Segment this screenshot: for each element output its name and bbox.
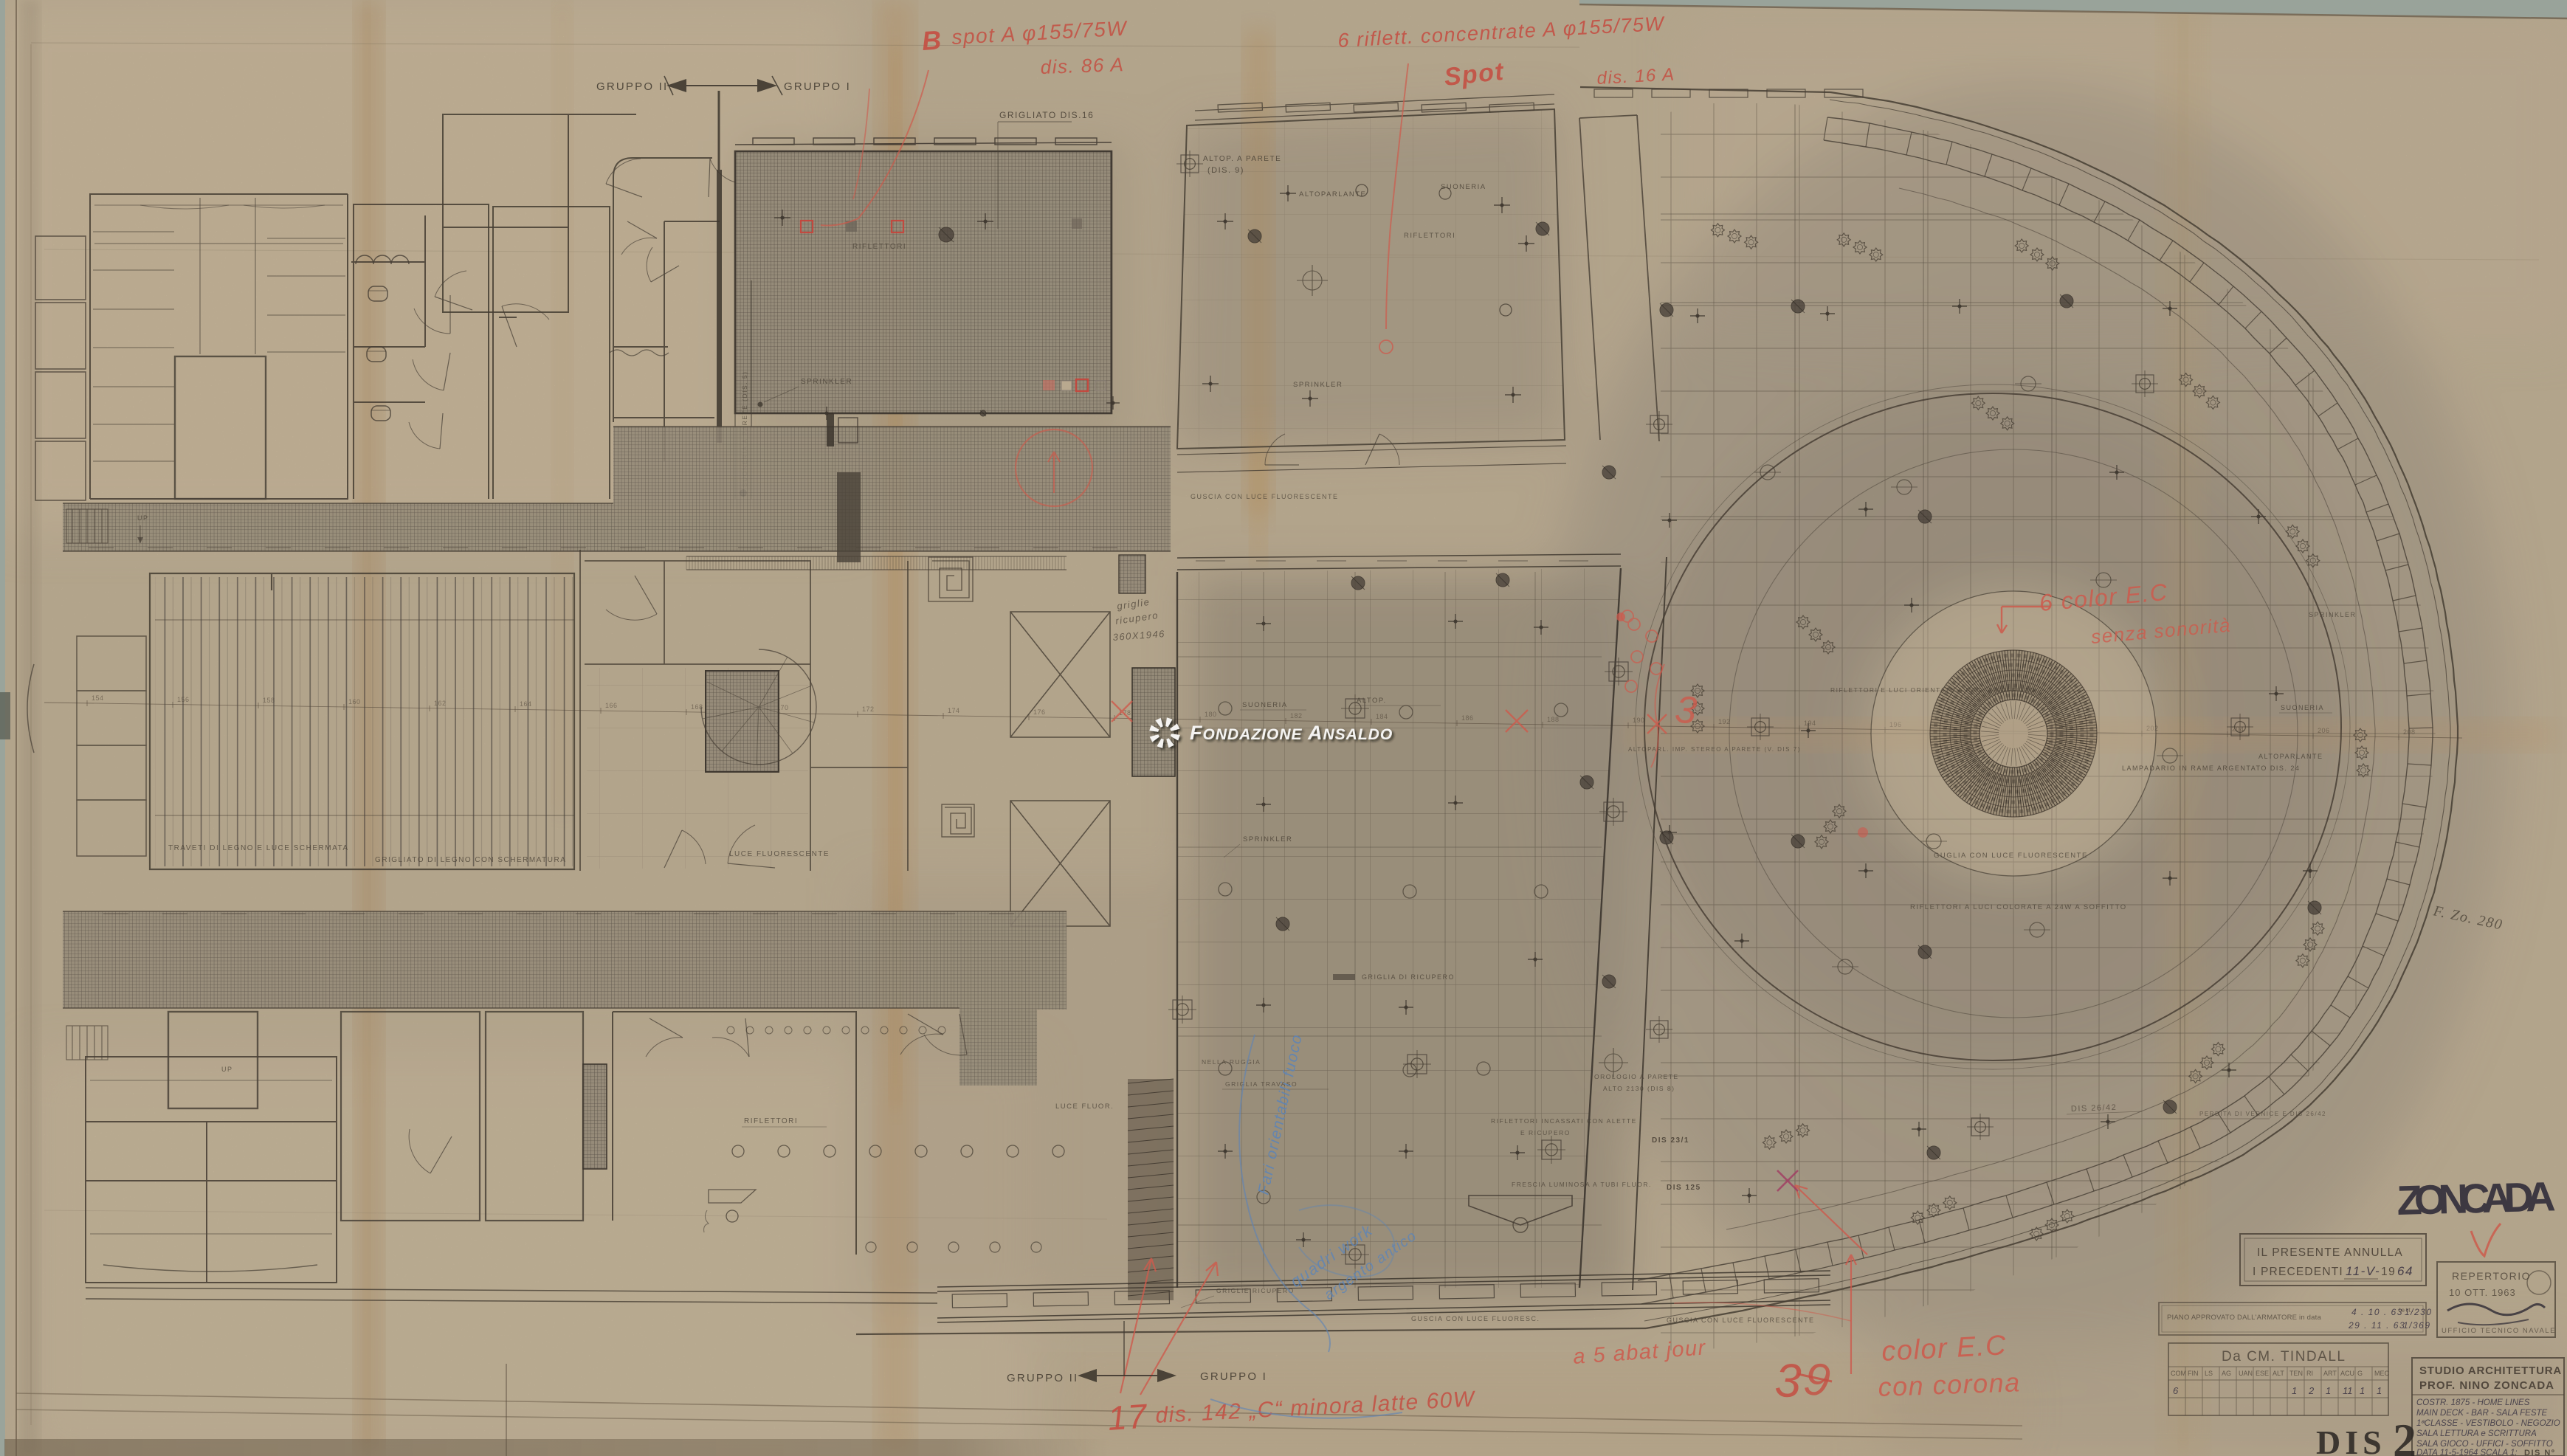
svg-text:GUSCIA CON LUCE FLUORESCENTE: GUSCIA CON LUCE FLUORESCENTE xyxy=(1667,1317,1815,1324)
svg-text:Da CM. TINDALL: Da CM. TINDALL xyxy=(2222,1349,2346,1364)
svg-text:19: 19 xyxy=(2381,1266,2396,1278)
svg-text:1/369: 1/369 xyxy=(2403,1320,2431,1331)
svg-text:FRESCIA LUMINOSA A TUBI FLUOR.: FRESCIA LUMINOSA A TUBI FLUOR. xyxy=(1512,1181,1652,1188)
svg-text:GRIGLIATO DIS.16: GRIGLIATO DIS.16 xyxy=(999,110,1094,120)
svg-text:6: 6 xyxy=(2173,1385,2179,1396)
svg-text:B: B xyxy=(921,24,943,56)
svg-text:LUCE FLUOR.: LUCE FLUOR. xyxy=(1055,1103,1114,1111)
svg-text:174: 174 xyxy=(948,707,960,714)
svg-text:UFFICIO TECNICO NAVALE: UFFICIO TECNICO NAVALE xyxy=(2442,1327,2556,1335)
svg-text:172: 172 xyxy=(862,705,875,713)
svg-text:176: 176 xyxy=(1033,708,1046,716)
svg-text:4 . 10 . 63: 4 . 10 . 63 xyxy=(2351,1307,2403,1317)
svg-text:ART: ART xyxy=(2323,1370,2337,1377)
svg-text:206: 206 xyxy=(2318,727,2330,734)
svg-text:RIFLETTORI E LUCI ORIENTATE A: RIFLETTORI E LUCI ORIENTATE A RAG. A SOF… xyxy=(1830,686,2036,694)
svg-text:SUONERIA: SUONERIA xyxy=(1242,701,1288,709)
svg-text:DATA 11-5-1964 SCALA 1:: DATA 11-5-1964 SCALA 1: xyxy=(2416,1449,2518,1456)
svg-text:GUSCIA CON LUCE FLUORESC.: GUSCIA CON LUCE FLUORESC. xyxy=(1411,1315,1540,1322)
svg-text:TEN: TEN xyxy=(2289,1370,2303,1377)
svg-text:REPERTORIO: REPERTORIO xyxy=(2452,1270,2531,1282)
svg-text:COSTR. 1875 - HOME LINES: COSTR. 1875 - HOME LINES xyxy=(2416,1398,2530,1407)
svg-text:ALTO 2130 (DIS 8): ALTO 2130 (DIS 8) xyxy=(1603,1085,1675,1092)
svg-text:RIFLETTORI: RIFLETTORI xyxy=(852,243,906,251)
svg-text:ZONCADA: ZONCADA xyxy=(2397,1173,2559,1224)
svg-text:con corona: con corona xyxy=(1878,1367,2021,1402)
svg-text:ACU: ACU xyxy=(2340,1370,2354,1377)
svg-text:GRUPPO II: GRUPPO II xyxy=(596,80,668,93)
svg-text:154: 154 xyxy=(92,694,104,702)
svg-text:dis. 16 A: dis. 16 A xyxy=(1596,64,1675,89)
svg-text:1: 1 xyxy=(2292,1385,2297,1396)
svg-text:GRIGLIA DI RICUPERO: GRIGLIA DI RICUPERO xyxy=(1362,973,1455,981)
svg-text:10 OTT. 1963: 10 OTT. 1963 xyxy=(2449,1287,2516,1298)
svg-text:ALTOP.: ALTOP. xyxy=(1357,697,1387,705)
svg-text:LS: LS xyxy=(2205,1370,2213,1377)
svg-text:SUONERIA: SUONERIA xyxy=(2281,704,2324,711)
svg-text:ALTOP. A PARETE: ALTOP. A PARETE xyxy=(1203,155,1281,163)
svg-text:AG: AG xyxy=(2222,1370,2231,1377)
svg-text:RI: RI xyxy=(2306,1370,2313,1377)
svg-text:ALTOPARLANTE: ALTOPARLANTE xyxy=(1299,190,1366,199)
svg-text:SUONERIA: SUONERIA xyxy=(1441,183,1486,191)
svg-text:color E.C: color E.C xyxy=(1881,1330,2008,1367)
svg-text:11: 11 xyxy=(2343,1385,2353,1396)
svg-text:29 . 11 . 63: 29 . 11 . 63 xyxy=(2348,1320,2405,1331)
svg-text:LAMPADARIO IN RAME ARGENTATO: LAMPADARIO IN RAME ARGENTATO DIS. 24 xyxy=(2122,765,2300,772)
svg-text:RIFLETTORI A LUCI COLORATE A 2: RIFLETTORI A LUCI COLORATE A 24W A SOFFI… xyxy=(1910,903,2127,911)
svg-text:STUDIO ARCHITETTURA: STUDIO ARCHITETTURA xyxy=(2419,1364,2562,1377)
svg-text:MAIN DECK - BAR - SALA FESTE: MAIN DECK - BAR - SALA FESTE xyxy=(2416,1409,2548,1418)
svg-text:GRIGLIATO DI LEGNO CON SCHERMA: GRIGLIATO DI LEGNO CON SCHERMATURA xyxy=(375,856,566,864)
svg-text:(DIS. 9): (DIS. 9) xyxy=(1207,166,1244,175)
svg-text:11-V-: 11-V- xyxy=(2346,1264,2380,1278)
svg-text:2: 2 xyxy=(2393,1414,2416,1456)
svg-text:OROLOGIO A PARETE: OROLOGIO A PARETE xyxy=(1594,1073,1679,1080)
svg-text:GUGLIA CON LUCE FLUORESCENTE: GUGLIA CON LUCE FLUORESCENTE xyxy=(1934,852,2088,860)
svg-text:SALA LETTURA e SCRITTURA: SALA LETTURA e SCRITTURA xyxy=(2416,1429,2537,1438)
svg-text:ALTOPARLANTE: ALTOPARLANTE xyxy=(2258,753,2323,760)
svg-text:RIFLETTORI: RIFLETTORI xyxy=(1404,232,1455,240)
svg-text:GRUPPO II: GRUPPO II xyxy=(1007,1372,1078,1384)
svg-text:UP: UP xyxy=(221,1066,233,1073)
svg-text:SPRINKLER: SPRINKLER xyxy=(2309,611,2357,618)
svg-text:GUSCIA CON LUCE FLUORESCENTE: GUSCIA CON LUCE FLUORESCENTE xyxy=(1191,493,1339,500)
svg-text:ESE: ESE xyxy=(2256,1370,2269,1377)
svg-text:192: 192 xyxy=(1718,718,1731,725)
svg-text:RIFLETTORI: RIFLETTORI xyxy=(744,1117,798,1125)
svg-text:DIS 23/1: DIS 23/1 xyxy=(1652,1136,1689,1145)
svg-text:DIS 26/42: DIS 26/42 xyxy=(2071,1103,2118,1114)
svg-text:SPRINKLER: SPRINKLER xyxy=(801,378,852,386)
svg-text:IL PRESENTE ANNULLA: IL PRESENTE ANNULLA xyxy=(2257,1246,2403,1259)
svg-text:DIS 125: DIS 125 xyxy=(1667,1184,1701,1192)
svg-text:FIN: FIN xyxy=(2188,1370,2199,1377)
svg-text:3: 3 xyxy=(1774,1353,1804,1407)
svg-text:DIS Nº: DIS Nº xyxy=(2524,1449,2555,1456)
svg-text:GRUPPO I: GRUPPO I xyxy=(784,80,851,93)
svg-text:COM: COM xyxy=(2171,1370,2186,1377)
svg-text:ALT: ALT xyxy=(2273,1370,2284,1377)
svg-text:ALTOPARL. IMP. STEREO A PARETE: ALTOPARL. IMP. STEREO A PARETE (V. DIS 7… xyxy=(1628,746,1801,753)
svg-text:E RICUPERO: E RICUPERO xyxy=(1520,1129,1571,1136)
svg-text:PIANO APPROVATO DALL'ARMATORE: PIANO APPROVATO DALL'ARMATORE in data xyxy=(2167,1314,2321,1322)
svg-text:1ªCLASSE - VESTIBOLO - NEGOZIO: 1ªCLASSE - VESTIBOLO - NEGOZIO xyxy=(2416,1419,2560,1428)
svg-text:SALA GIOCO - UFFICI - SOFFITTO: SALA GIOCO - UFFICI - SOFFITTO xyxy=(2416,1440,2553,1449)
svg-text:3: 3 xyxy=(1673,688,1700,733)
svg-text:64: 64 xyxy=(2397,1264,2413,1278)
svg-text:194: 194 xyxy=(1804,720,1816,727)
svg-text:1: 1 xyxy=(2360,1385,2365,1396)
svg-text:RIFLETTORI INCASSATI CON ALETT: RIFLETTORI INCASSATI CON ALETTE xyxy=(1491,1117,1637,1125)
svg-text:UAN: UAN xyxy=(2239,1370,2253,1377)
svg-text:LUCE FLUORESCENTE: LUCE FLUORESCENTE xyxy=(729,850,830,858)
svg-text:PROF. NINO ZONCADA: PROF. NINO ZONCADA xyxy=(2419,1379,2554,1392)
svg-text:1: 1 xyxy=(2377,1385,2382,1396)
svg-text:SPRINKLER: SPRINKLER xyxy=(1243,835,1292,843)
svg-text:2: 2 xyxy=(2308,1385,2315,1396)
svg-text:1/230: 1/230 xyxy=(2405,1307,2433,1317)
svg-text:1: 1 xyxy=(2326,1385,2331,1396)
svg-text:17: 17 xyxy=(1106,1396,1149,1438)
svg-text:I PRECEDENTI: I PRECEDENTI xyxy=(2253,1266,2343,1278)
svg-text:NELLA RUGGIA: NELLA RUGGIA xyxy=(1202,1058,1261,1066)
svg-text:PERDITA DI VERNICE E DIS 26/42: PERDITA DI VERNICE E DIS 26/42 xyxy=(2199,1111,2326,1117)
svg-text:MEC: MEC xyxy=(2374,1370,2390,1377)
svg-text:G: G xyxy=(2357,1370,2363,1377)
svg-text:DIS: DIS xyxy=(2316,1424,2386,1456)
svg-text:dis. 86 A: dis. 86 A xyxy=(1040,53,1125,78)
svg-text:TRAVETI DI LEGNO E LUCE SCHERM: TRAVETI DI LEGNO E LUCE SCHERMATA xyxy=(168,844,349,852)
svg-text:SPRINKLER: SPRINKLER xyxy=(1293,381,1343,389)
svg-text:190: 190 xyxy=(1633,717,1645,724)
svg-text:UP: UP xyxy=(137,514,149,522)
svg-text:GRUPPO I: GRUPPO I xyxy=(1200,1370,1267,1383)
